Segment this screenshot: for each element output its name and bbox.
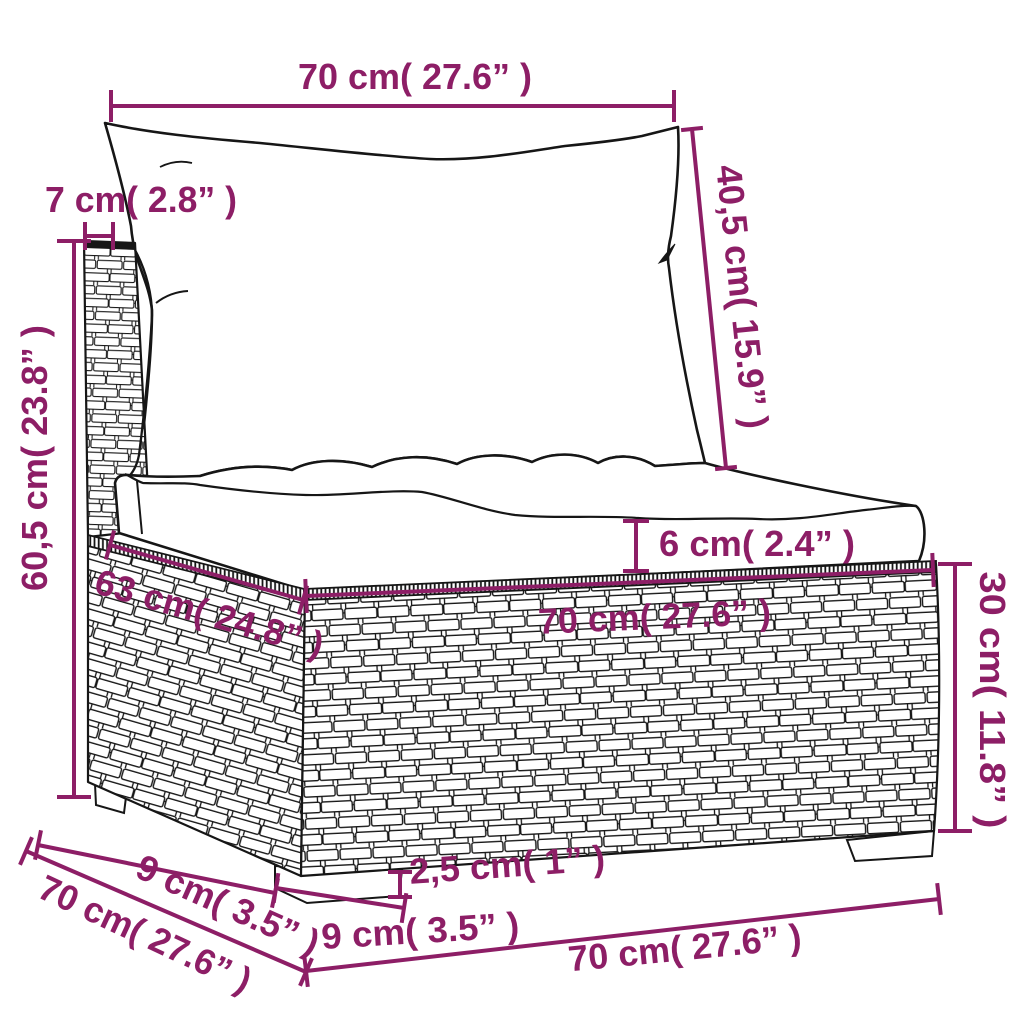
svg-text:30 cm( 11.8” ): 30 cm( 11.8” ) bbox=[972, 572, 1013, 829]
svg-text:7 cm( 2.8” ): 7 cm( 2.8” ) bbox=[45, 179, 237, 220]
svg-text:60,5 cm( 23.8” ): 60,5 cm( 23.8” ) bbox=[14, 325, 55, 591]
svg-text:70 cm( 27.6” ): 70 cm( 27.6” ) bbox=[298, 56, 532, 97]
svg-text:6 cm( 2.4” ): 6 cm( 2.4” ) bbox=[659, 523, 855, 564]
